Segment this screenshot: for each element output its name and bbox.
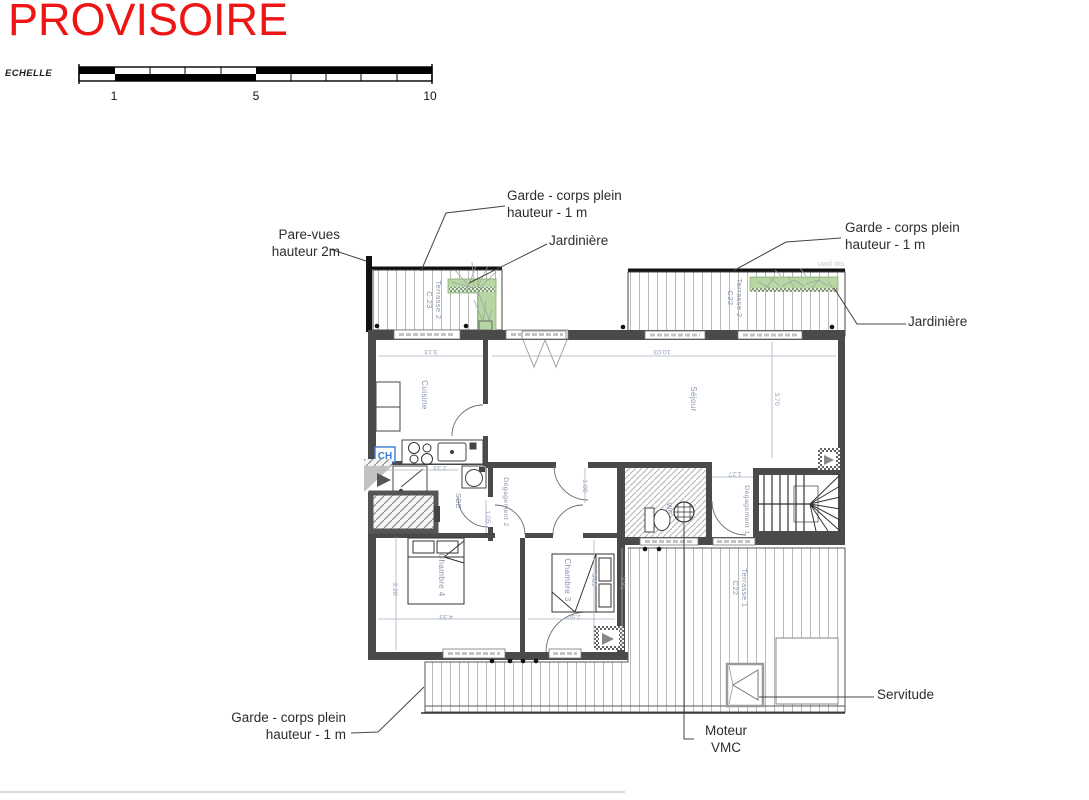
duct-shaft-top (818, 448, 840, 470)
top-plan-faint-label: top plan (818, 260, 845, 269)
room-label-cuisine: Cuisine (420, 380, 429, 410)
room-label-degagement2: Dégagement 2 (502, 477, 509, 526)
scale-bar: 1 5 10 (79, 64, 437, 103)
terrace-bottom-name: Terrasse 1 (740, 568, 749, 607)
room-label-wc: WC (665, 503, 674, 516)
bed-chambre4 (408, 538, 464, 604)
dim-chambre3-width: 2.50 (567, 613, 580, 620)
entry-shaft-box (371, 493, 440, 531)
annotation-jardiniere-top: Jardinière (549, 232, 608, 249)
dim-sde-width: 2.33 (433, 464, 446, 471)
washbasin (462, 466, 486, 488)
duct-shaft-bottom (594, 626, 624, 650)
annotation-pare-vues: Pare-vues hauteur 2m (234, 226, 340, 260)
terrace-left-name: Terrasse 2 (434, 280, 443, 319)
room-label-chambre3: Chambre 3 (563, 558, 572, 601)
dim-sejour-depth: 3.70 (773, 392, 780, 405)
annotation-garde-corps-top: Garde - corps plein hauteur - 1 m (507, 187, 622, 221)
bed-chambre3 (552, 554, 614, 612)
dim-chambre4-width: 4.33 (439, 613, 452, 620)
terrace-left-code: C.23 (425, 291, 434, 308)
dim-cuisine-width: 3.13 (424, 348, 437, 355)
dim-degagement1-width: 1.27 (728, 470, 741, 477)
room-label-chambre4: Chambre 4 (437, 553, 446, 596)
annotation-garde-corps-right: Garde - corps plein hauteur - 1 m (845, 219, 960, 253)
servitude-hatch-icon (727, 664, 763, 706)
dim-chambre3-depth: 3.01 (590, 573, 597, 586)
dim-chambre4-depth: 3.20 (391, 582, 398, 595)
terrace-topright-name: Terrasse 2 (735, 278, 744, 317)
dim-sejour-width: 10.03 (653, 348, 670, 355)
floor-plan-page: PROVISOIRE ECHELLE (0, 0, 1089, 800)
scale-tick-10: 10 (423, 89, 437, 103)
floor-plan-drawing: 1 5 10 (0, 0, 1089, 800)
leader-garde-bottom (351, 687, 424, 733)
terrace-bottom-code: C22 (731, 581, 740, 596)
scale-tick-1: 1 (111, 89, 118, 103)
leader-jardiniere-top (469, 244, 547, 283)
vmc-fan (674, 502, 694, 522)
room-label-sejour: Séjour (689, 386, 698, 412)
annotation-jardiniere-right: Jardinière (908, 313, 967, 330)
skylight-box (776, 638, 838, 704)
annotation-servitude: Servitude (877, 686, 934, 703)
scale-tick-5: 5 (253, 89, 260, 103)
room-label-sde: SDE (454, 493, 463, 509)
leader-garde-top (421, 206, 505, 271)
room-label-degagement1: Dégagement 1 (743, 485, 750, 534)
dim-door-width: 1.00 (581, 479, 588, 492)
dim-terrasse-depth: 3.81 (619, 576, 626, 589)
annotation-moteur-vmc: Moteur VMC (695, 722, 757, 756)
annotation-garde-corps-bottom: Garde - corps plein hauteur - 1 m (223, 709, 346, 743)
dim-degagement2-width: 1.05 (484, 510, 491, 523)
green-window (479, 321, 492, 330)
terrace-topright-code: C22 (726, 291, 735, 306)
pare-vue-screen (366, 256, 372, 332)
